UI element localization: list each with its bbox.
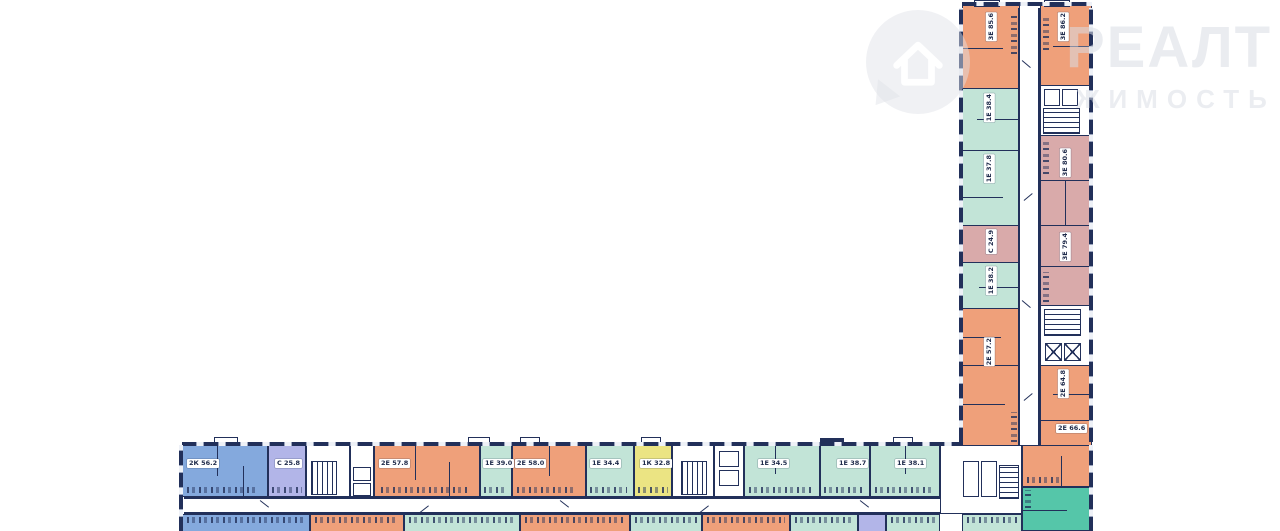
- apartment-1e-34-4: 1Е 34.4: [586, 445, 634, 497]
- staircase: [1044, 309, 1081, 336]
- elevator-shaft: [1045, 343, 1062, 361]
- elevator-shaft: [719, 451, 739, 467]
- staircase: [681, 461, 707, 495]
- apartment-v1: 3Е 86.2: [1040, 5, 1092, 86]
- fixtures: [1025, 490, 1031, 508]
- fixtures: [1043, 14, 1049, 50]
- house-pin-icon: [866, 10, 970, 114]
- watermark-tagline-text: ЖИМОСТЬ: [1076, 84, 1276, 115]
- apartment-label: С 25.8: [275, 459, 302, 468]
- corridor-vertical: [1018, 8, 1040, 445]
- fixtures: [1011, 412, 1017, 442]
- fixtures: [749, 487, 811, 493]
- apartment-v2: 1Е 38.4: [962, 88, 1020, 151]
- elevator-shaft: [353, 483, 371, 496]
- apartment-label: 1К 32.8: [640, 459, 672, 468]
- elevator-shaft: [353, 467, 371, 481]
- apartment-corner-orange: [1022, 445, 1092, 487]
- apartment-v6: 3Е 80.6: [1040, 135, 1092, 226]
- apartment-label: 2К 56.2: [187, 459, 219, 468]
- stair-elevator-block-v2: [1040, 305, 1092, 366]
- elevator-shaft: [1064, 343, 1081, 361]
- room-divider: [979, 287, 1019, 288]
- room-divider: [415, 446, 416, 480]
- apartment-s-25-8: С 25.8: [268, 445, 306, 497]
- apartment-v0: 3Е 85.6: [962, 5, 1020, 89]
- room-divider: [1065, 180, 1066, 226]
- fixtures: [824, 487, 863, 493]
- apartment-v8: 2Е 57.2: [962, 308, 1020, 366]
- elevator-block-1: [350, 445, 374, 497]
- fixtures: [484, 487, 508, 493]
- floor-plan-page: 3Е 85.6 1Е 38.4 1Е 37.8 С 24.9 1Е 38.2 2…: [0, 0, 1280, 531]
- apartment-1e-38-7: 1Е 38.7: [820, 445, 870, 497]
- apartment-label: 3Е 85.6: [986, 12, 997, 41]
- apartment-corner-green: [1022, 487, 1092, 531]
- apartment-fragment: [404, 514, 520, 531]
- staircase: [1043, 108, 1080, 134]
- apartment-fragment: [310, 514, 404, 531]
- apartment-label: 1Е 38.1: [895, 459, 926, 468]
- fixtures: [272, 487, 302, 493]
- elevator-shaft: [981, 461, 997, 497]
- window-wall: [959, 8, 963, 442]
- apartment-label: 2Е 57.8: [379, 459, 410, 468]
- watermark-brand-text: РЕАЛТ: [1066, 14, 1272, 81]
- apartment-label: 2Е 64.8: [1058, 369, 1069, 398]
- apartment-label: 3Е 79.4: [1060, 232, 1071, 261]
- room-divider: [1041, 266, 1091, 267]
- fixtures: [891, 517, 935, 523]
- room-divider: [963, 337, 1001, 338]
- apartment-label: 1Е 34.4: [590, 459, 621, 468]
- apartment-label: 1Е 39.0: [483, 459, 514, 468]
- apartment-1e-38-1: 1Е 38.1: [870, 445, 940, 497]
- apartment-1e-34-5: 1Е 34.5: [744, 445, 820, 497]
- apartment-label: 2Е 66.6: [1056, 424, 1087, 433]
- window-wall: [1089, 8, 1093, 442]
- fixtures: [381, 487, 469, 493]
- fixtures: [875, 487, 931, 493]
- fixtures: [517, 487, 577, 493]
- staircase: [311, 461, 337, 495]
- central-core-block: [940, 445, 1022, 514]
- window-wall: [182, 442, 962, 446]
- room-divider: [963, 48, 1003, 49]
- apartment-label: 1Е 37.8: [984, 154, 995, 183]
- apartment-label: 1Е 38.4: [984, 93, 995, 122]
- apartment-fragment: [962, 514, 1022, 531]
- apartment-v4: С 24.9: [962, 225, 1020, 263]
- fixtures: [187, 517, 305, 523]
- apartment-label: 2Е 57.2: [984, 337, 995, 366]
- fixtures: [1043, 140, 1049, 174]
- room-divider: [1053, 46, 1093, 47]
- room-divider: [963, 404, 1005, 405]
- room-divider: [1061, 456, 1062, 488]
- apartment-label: 3Е 86.2: [1058, 12, 1069, 41]
- apartment-v5: 1Е 38.2: [962, 262, 1020, 309]
- apartment-fragment: [630, 514, 702, 531]
- apartment-fragment: [702, 514, 790, 531]
- fixtures: [1027, 477, 1061, 483]
- fixtures: [967, 517, 1017, 523]
- fixtures: [1043, 272, 1049, 302]
- elevator-block-2: [714, 445, 744, 497]
- fixtures: [1011, 14, 1017, 54]
- apartment-label: 3Е 80.6: [1060, 148, 1071, 177]
- room-divider: [1041, 180, 1091, 181]
- apartment-1k-32-8: 1К 32.8: [634, 445, 672, 497]
- fixtures: [638, 487, 668, 493]
- apartment-fragment: [182, 514, 310, 531]
- apartment-label: 1Е 38.7: [837, 459, 868, 468]
- apartment-2e-57-8: 2Е 57.8: [374, 445, 480, 497]
- apartment-label: 1Е 34.5: [758, 459, 789, 468]
- fixtures: [707, 517, 785, 523]
- window-wall: [1089, 445, 1093, 531]
- elevator-shaft: [1062, 89, 1078, 106]
- corridor-horizontal: [184, 497, 1022, 514]
- apartment-fragment: [790, 514, 858, 531]
- house-icon: [882, 26, 954, 98]
- fixtures: [525, 517, 625, 523]
- apartment-v3: 1Е 37.8: [962, 150, 1020, 226]
- apartment-fragment: [858, 514, 886, 531]
- apartment-2e-58-0: 2Е 58.0: [512, 445, 586, 497]
- window-wall: [179, 445, 183, 531]
- apartment-v9: 2Е 64.8: [1040, 365, 1092, 422]
- room-divider: [1023, 510, 1067, 511]
- apartment-1e-39-0: 1Е 39.0: [480, 445, 512, 497]
- apartment-2k-56-2: 2К 56.2: [182, 445, 268, 497]
- fixtures: [409, 517, 515, 523]
- elevator-shaft: [963, 461, 979, 497]
- fixtures: [795, 517, 853, 523]
- stairwell-block-1: [306, 445, 350, 497]
- elevator-shaft: [1044, 89, 1060, 106]
- fixtures: [590, 487, 627, 493]
- fixtures: [635, 517, 697, 523]
- staircase: [999, 465, 1019, 499]
- fixtures: [315, 517, 399, 523]
- apartment-label: С 24.9: [986, 229, 997, 254]
- apartment-v-lower-left: [962, 365, 1020, 446]
- elevator-shaft: [719, 470, 739, 486]
- apartment-fragment: [520, 514, 630, 531]
- apartment-label: 2Е 58.0: [515, 459, 546, 468]
- fixtures: [187, 487, 259, 493]
- apartment-v7: 3Е 79.4: [1040, 225, 1092, 306]
- room-divider: [549, 446, 550, 476]
- room-divider: [243, 466, 244, 498]
- elevator-stair-block-v: [1040, 85, 1092, 137]
- stairwell-block-2: [672, 445, 714, 497]
- apartment-v10: 2Е 66.6: [1040, 420, 1092, 447]
- apartment-fragment: [886, 514, 940, 531]
- apartment-label: 1Е 38.2: [986, 266, 997, 295]
- window-wall: [962, 2, 1092, 6]
- room-divider: [963, 197, 1003, 198]
